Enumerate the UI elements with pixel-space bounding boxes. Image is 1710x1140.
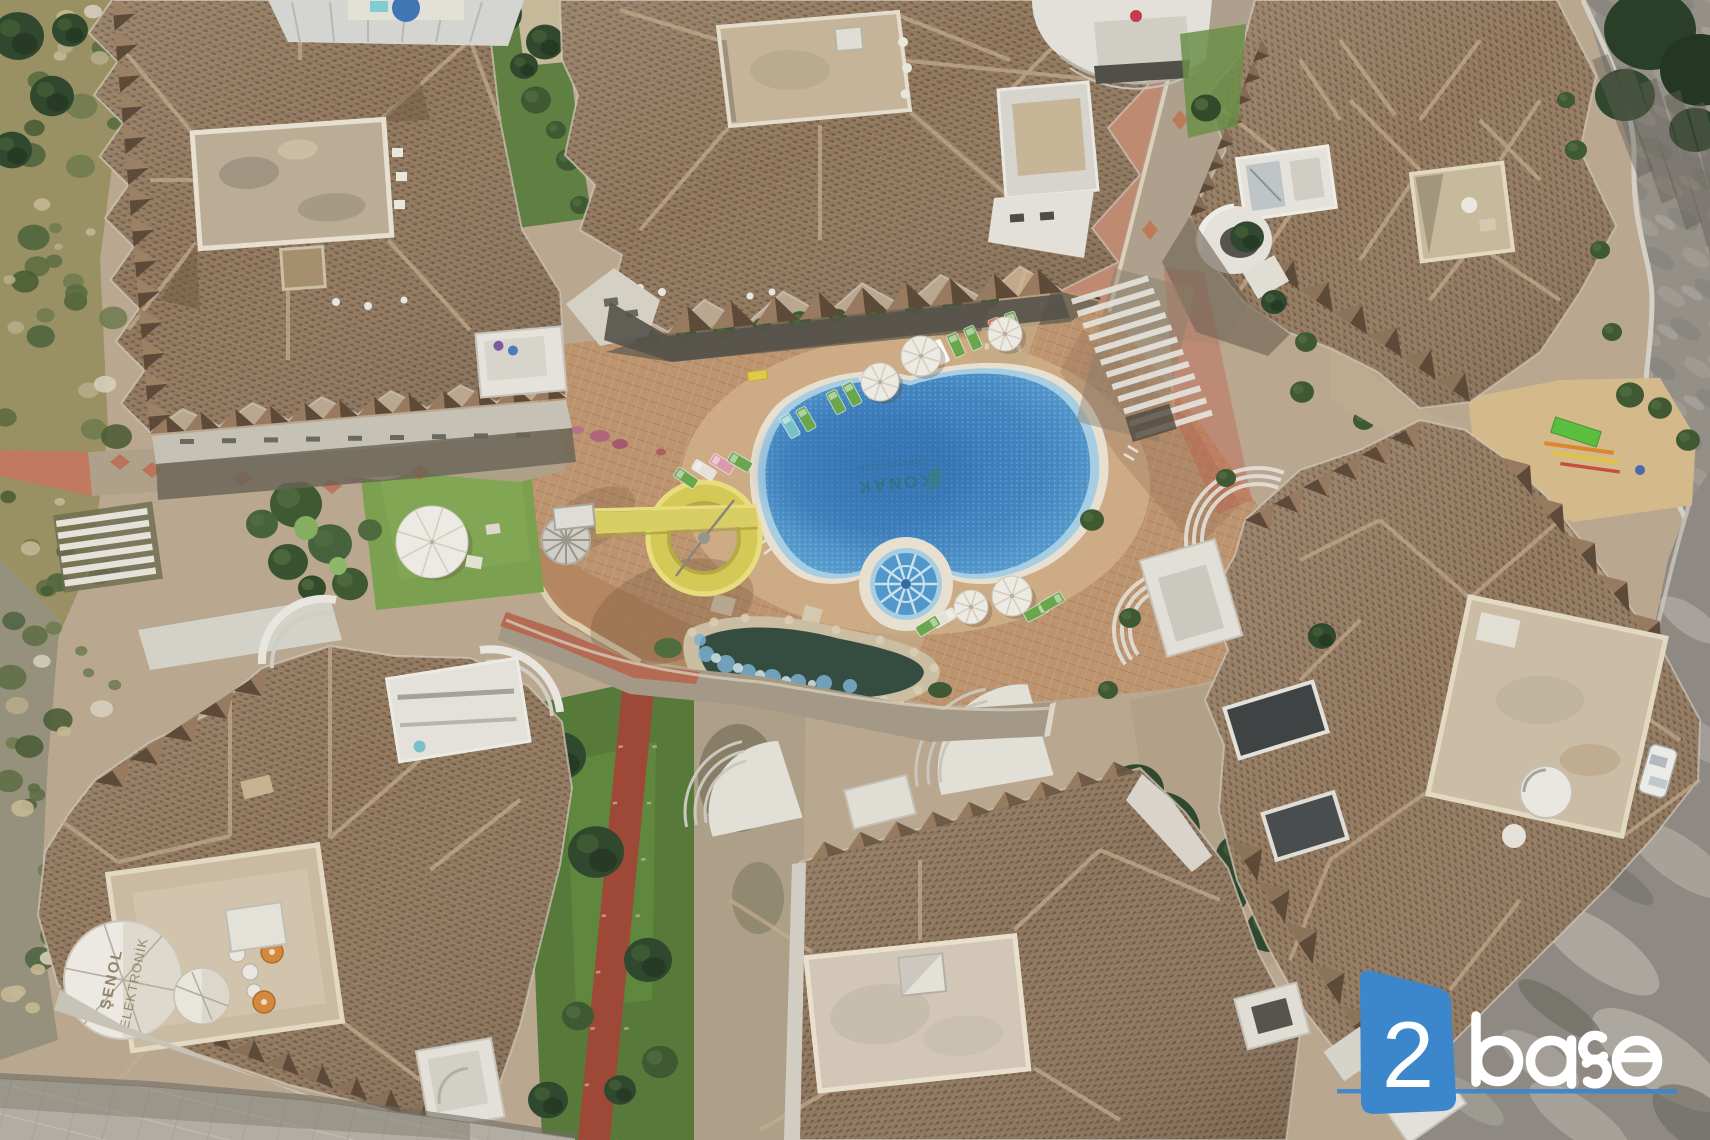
svg-text:2: 2: [1382, 1002, 1434, 1107]
